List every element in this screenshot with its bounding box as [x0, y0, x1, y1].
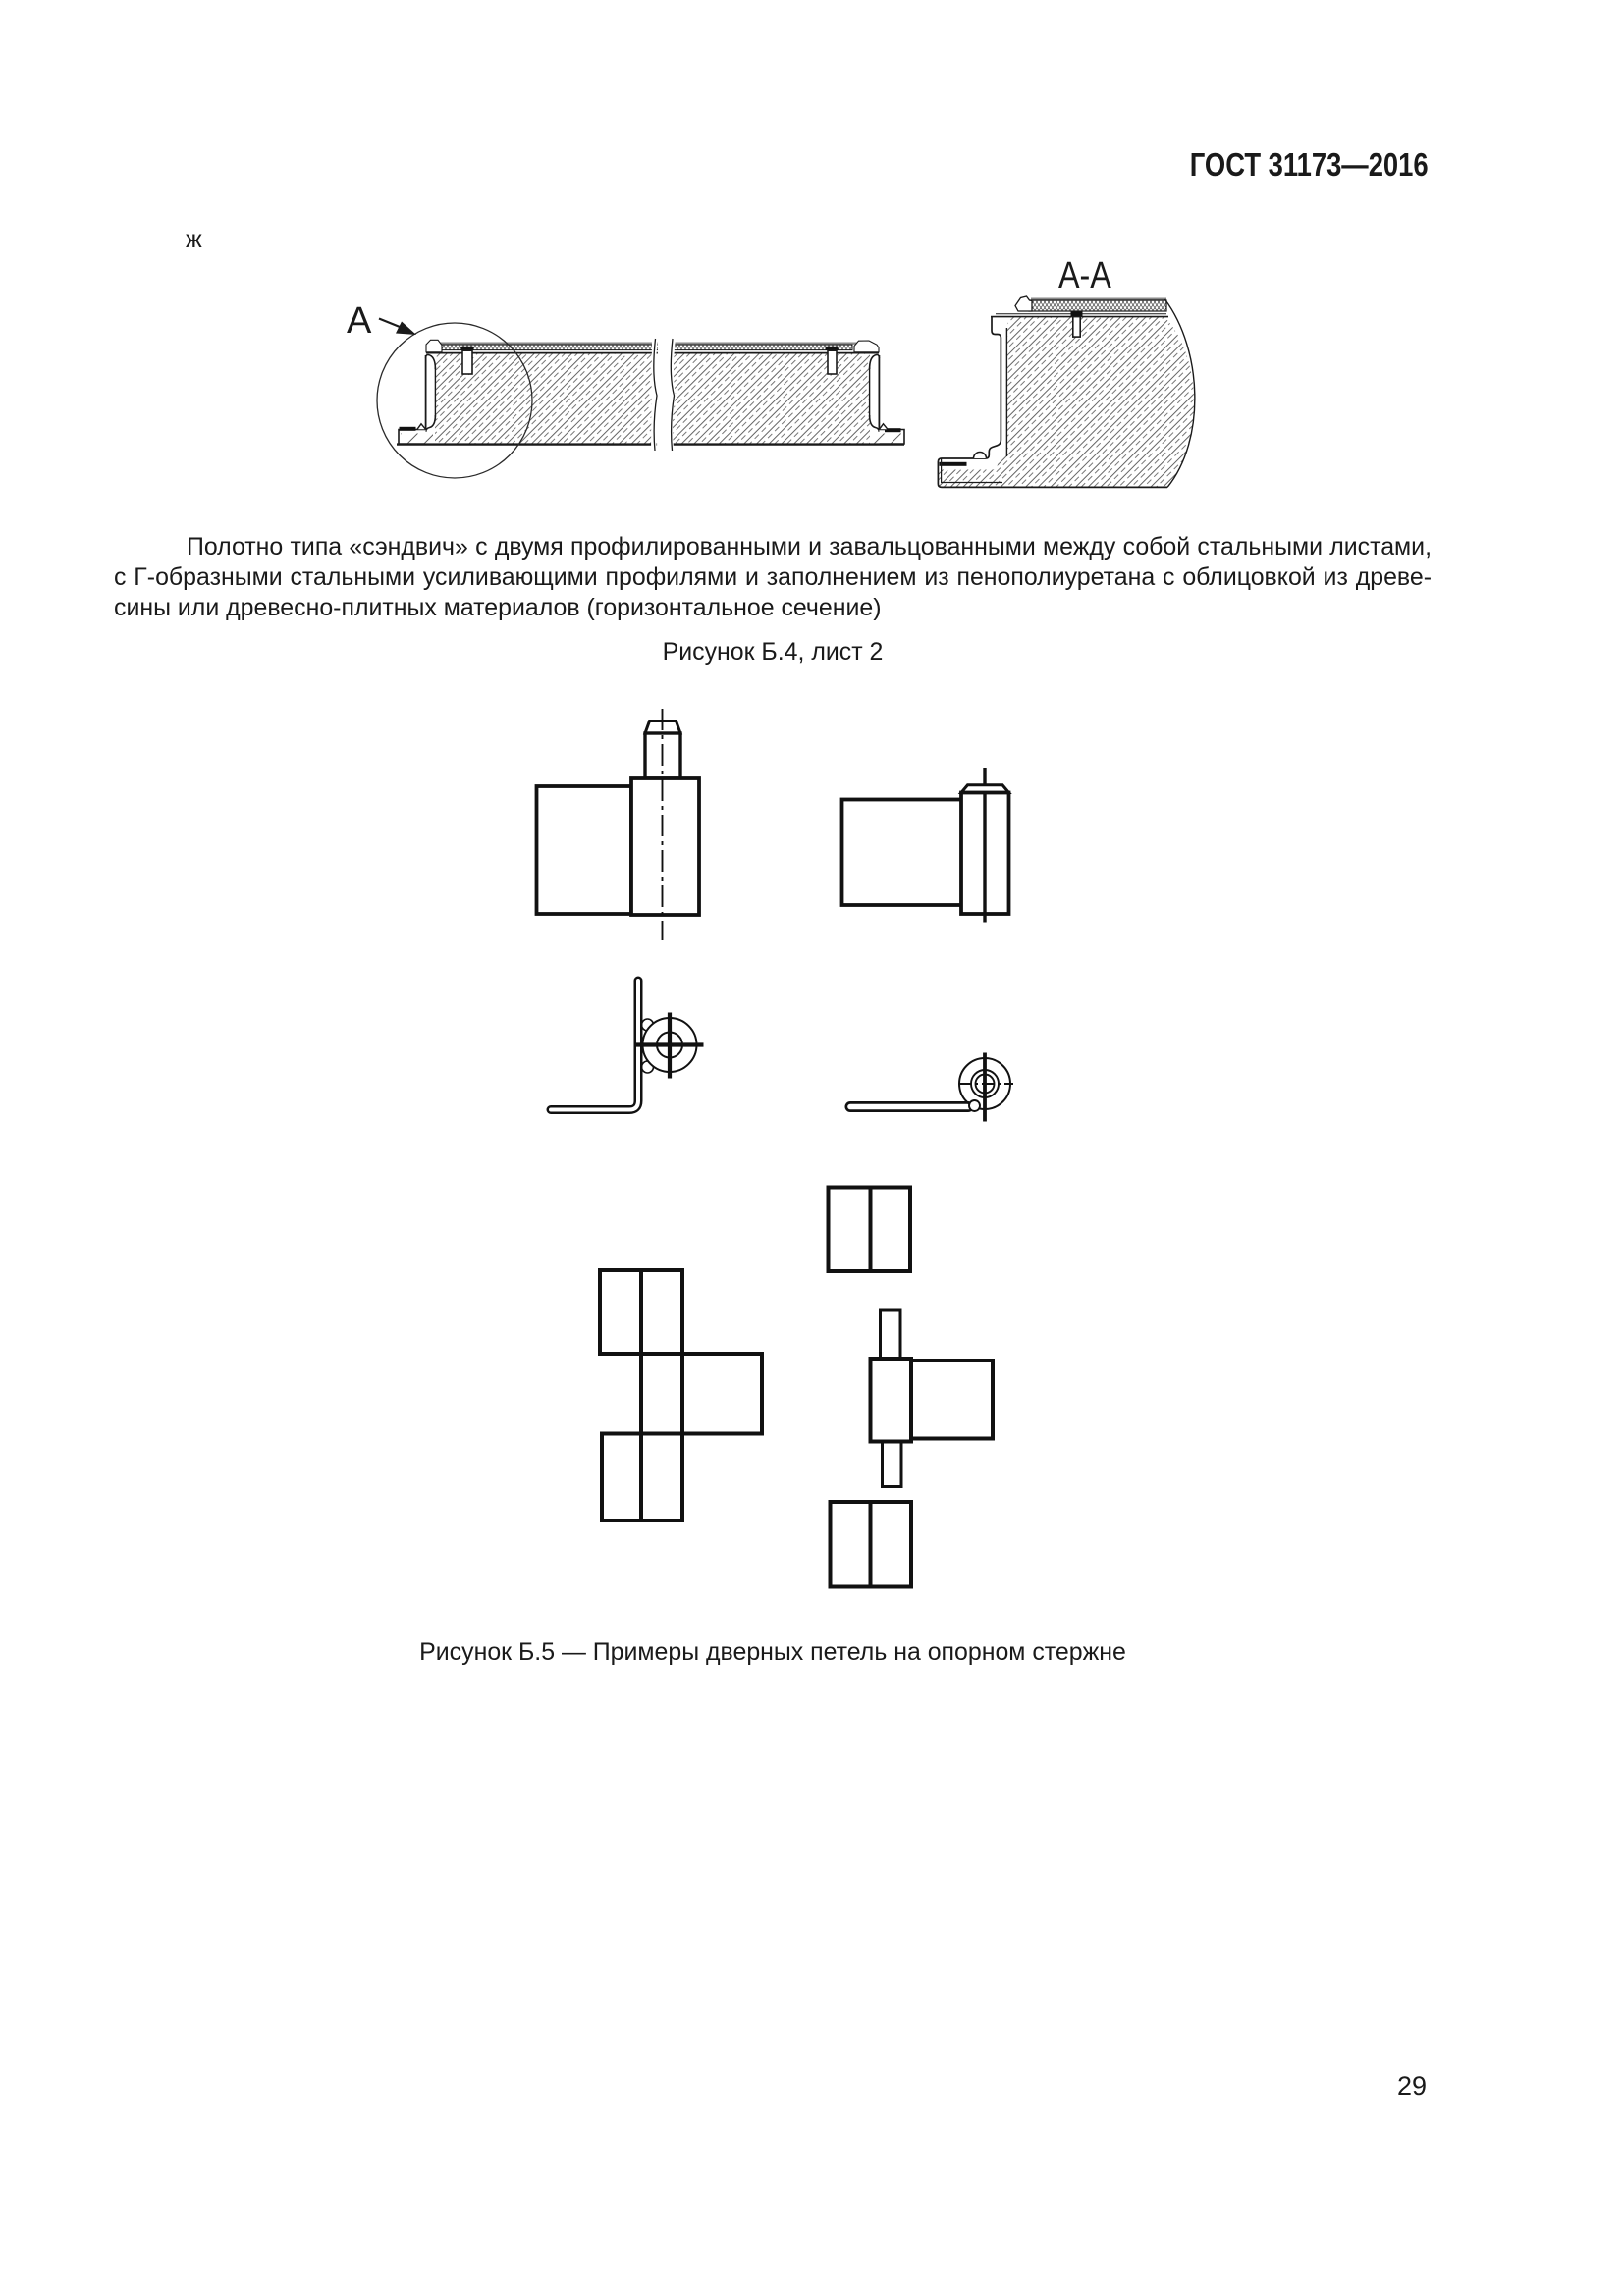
svg-text:А: А [347, 300, 372, 342]
